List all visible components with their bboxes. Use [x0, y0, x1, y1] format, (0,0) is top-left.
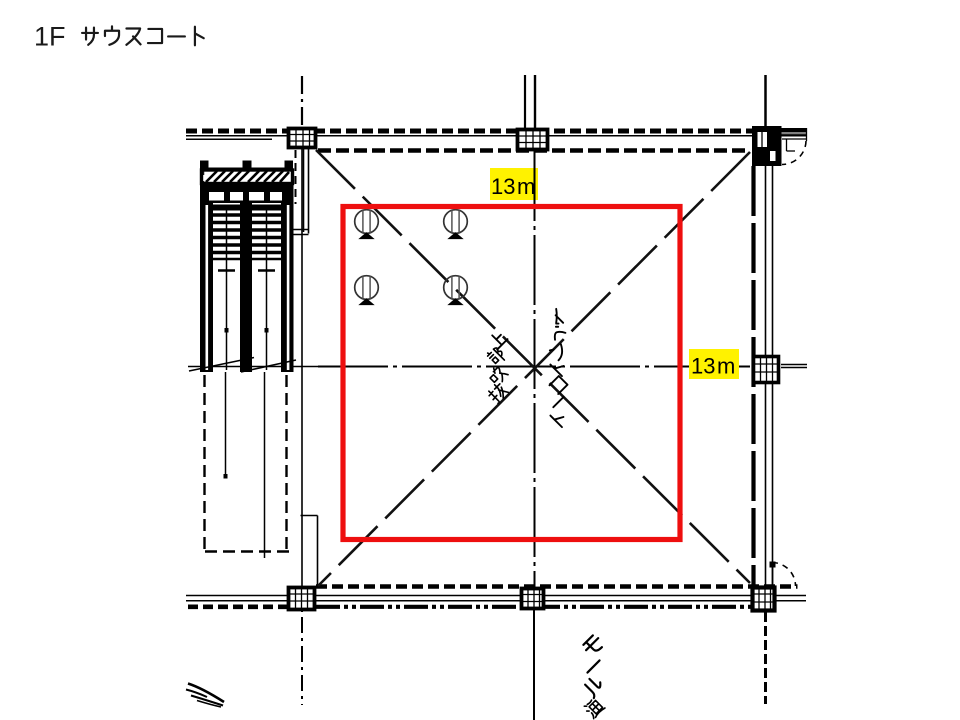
svg-text:13: 13 [491, 174, 515, 199]
svg-text:13: 13 [691, 354, 715, 379]
svg-text:m: m [517, 174, 535, 199]
svg-text:m: m [717, 354, 735, 379]
svg-text:1F: 1F [34, 22, 66, 52]
